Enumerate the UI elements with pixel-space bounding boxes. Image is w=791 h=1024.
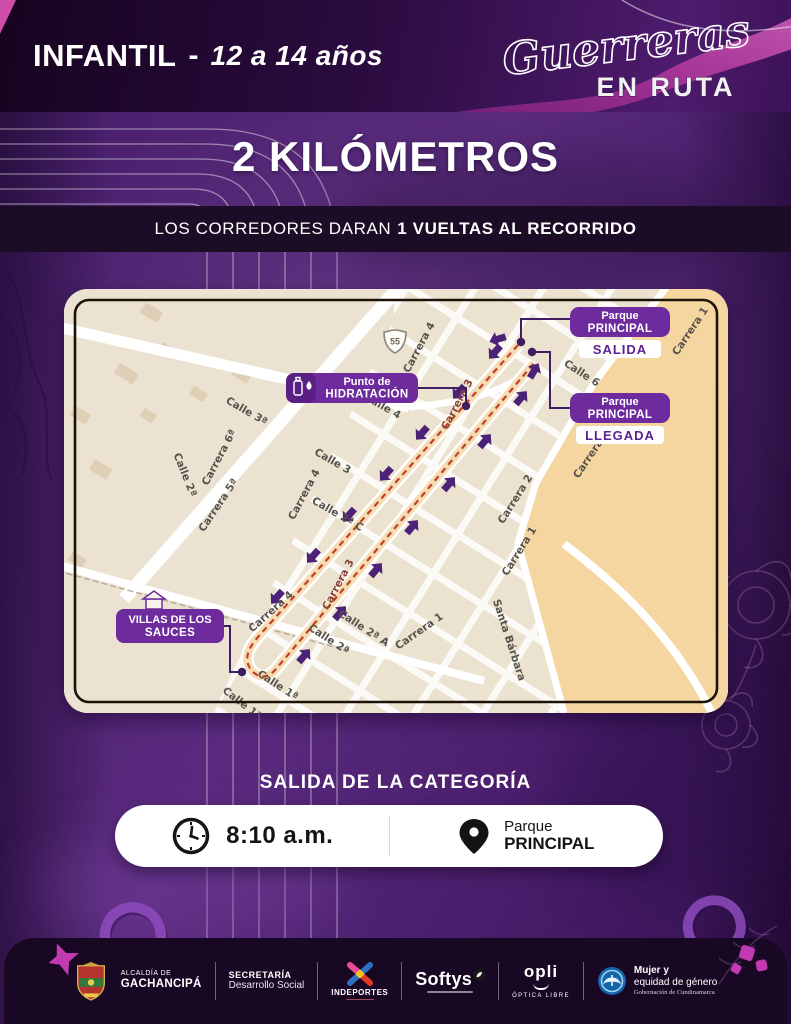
start-time: 8:10 a.m. bbox=[226, 822, 333, 850]
opli-name: opli bbox=[524, 962, 558, 982]
secretaria-line2: Desarrollo Social bbox=[229, 980, 305, 992]
mujer-line3: Gobernación de Cundinamarca bbox=[634, 989, 717, 996]
mujer-line2: equidad de género bbox=[634, 977, 717, 989]
map-canvas: 55 Calle 3ªCarrera 6ªCalle 2ªCarrera 5ªC… bbox=[64, 289, 728, 713]
footer-divider bbox=[401, 962, 402, 1000]
route-map: 55 Calle 3ªCarrera 6ªCalle 2ªCarrera 5ªC… bbox=[64, 289, 728, 713]
place-line2: PRINCIPAL bbox=[504, 835, 594, 853]
salida-line1: Parque bbox=[601, 310, 638, 322]
header: INFANTIL - 12 a 14 años Guerreras EN RUT… bbox=[0, 0, 791, 112]
laps-text-bold: 1 VUELTAS AL RECORRIDO bbox=[397, 219, 636, 239]
mujer-line1: Mujer y bbox=[634, 965, 717, 977]
footer-divider bbox=[215, 962, 216, 1000]
indeportes-name: INDEPORTES bbox=[331, 988, 388, 997]
indeportes-smallprint bbox=[346, 999, 374, 1001]
place-line1: Parque bbox=[504, 819, 594, 835]
clock-icon bbox=[170, 815, 212, 857]
time-segment: 8:10 a.m. bbox=[115, 815, 389, 857]
softys-wordmark: Softys bbox=[415, 969, 472, 990]
hydration-label: Punto de HIDRATACIÓN bbox=[286, 373, 418, 403]
event-poster: INFANTIL - 12 a 14 años Guerreras EN RUT… bbox=[0, 0, 791, 1024]
category-title: INFANTIL - 12 a 14 años bbox=[33, 0, 383, 112]
softys-tagline bbox=[427, 991, 473, 993]
logo-subtitle-text: EN RUTA bbox=[597, 72, 736, 102]
event-logo: Guerreras EN RUTA bbox=[478, 4, 783, 112]
gachancipa-crest bbox=[74, 961, 108, 1001]
age-range: 12 a 14 años bbox=[211, 40, 384, 72]
llegada-tag: LLEGADA bbox=[585, 428, 655, 443]
sponsor-logos-row: ALCALDÍA DE GACHANCIPÁ SECRETARÍA Desarr… bbox=[4, 938, 787, 1024]
villas-line1: VILLAS DE LOS bbox=[128, 614, 211, 626]
departure-pill: 8:10 a.m. Parque PRINCIPAL bbox=[115, 805, 663, 867]
opli-logo: opli ÓPTICA LIBRE bbox=[512, 962, 570, 999]
sponsors-footer: ALCALDÍA DE GACHANCIPÁ SECRETARÍA Desarr… bbox=[4, 938, 787, 1024]
mujer-text: Mujer y equidad de género Gobernación de… bbox=[634, 965, 717, 996]
laps-text-normal: LOS CORREDORES DARAN bbox=[154, 219, 391, 239]
llegada-label: Parque PRINCIPAL LLEGADA bbox=[570, 393, 670, 444]
laps-band: LOS CORREDORES DARAN 1 VUELTAS AL RECORR… bbox=[0, 206, 791, 252]
softys-leaf-icon bbox=[473, 969, 485, 981]
salida-tag: SALIDA bbox=[593, 342, 647, 357]
indeportes-logo: INDEPORTES bbox=[331, 962, 388, 1001]
footer-divider bbox=[498, 962, 499, 1000]
departure-heading: SALIDA DE LA CATEGORÍA bbox=[0, 772, 791, 794]
secretaria-line1: SECRETARÍA bbox=[229, 970, 305, 980]
category-name: INFANTIL bbox=[33, 38, 177, 74]
distance-title: 2 KILÓMETROS bbox=[0, 133, 791, 181]
llegada-line1: Parque bbox=[601, 396, 638, 408]
mujer-equidad-logo: Mujer y equidad de género Gobernación de… bbox=[597, 965, 717, 996]
hydration-line2: HIDRATACIÓN bbox=[325, 388, 408, 401]
llegada-line2: PRINCIPAL bbox=[588, 409, 653, 421]
footer-divider bbox=[583, 962, 584, 1000]
opli-subtitle: ÓPTICA LIBRE bbox=[512, 993, 570, 1000]
place-segment: Parque PRINCIPAL bbox=[390, 817, 664, 855]
salida-line2: PRINCIPAL bbox=[588, 323, 653, 335]
alcaldia-line2: GACHANCIPÁ bbox=[121, 978, 202, 991]
location-pin-icon bbox=[458, 817, 490, 855]
gobernacion-seal bbox=[597, 966, 627, 996]
alcaldia-text: ALCALDÍA DE GACHANCIPÁ bbox=[121, 970, 202, 991]
villas-line2: SAUCES bbox=[145, 627, 195, 639]
title-separator: - bbox=[189, 39, 199, 73]
footer-divider bbox=[317, 962, 318, 1000]
softys-name: Softys bbox=[415, 969, 485, 990]
secretaria-text: SECRETARÍA Desarrollo Social bbox=[229, 970, 305, 992]
opli-smile-mark bbox=[533, 983, 549, 990]
softys-logo: Softys bbox=[415, 969, 485, 994]
route-shield-number: 55 bbox=[390, 337, 400, 347]
start-place: Parque PRINCIPAL bbox=[504, 819, 594, 853]
salida-label: Parque PRINCIPAL SALIDA bbox=[570, 307, 670, 358]
indeportes-x-icon bbox=[347, 962, 373, 986]
hydration-line1: Punto de bbox=[343, 376, 390, 388]
